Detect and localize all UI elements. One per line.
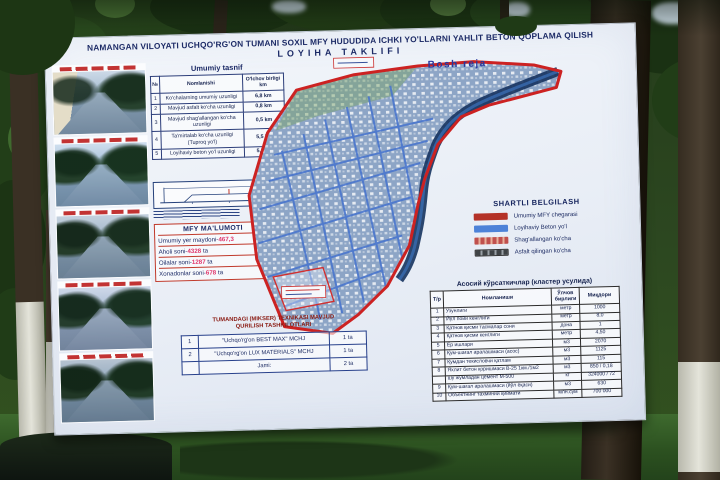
indicators-table: Асосий кўрсаткичлар (кластер усулида) Т/… [429, 277, 622, 402]
master-plan-label: Bosh reja [428, 58, 487, 71]
map-label-chip [281, 286, 325, 299]
legend-swatch-asphalt-road [475, 249, 509, 257]
photo-scene: NAMANGAN VILOYATI UCHQO'RG'ON TUMANI SOX… [0, 0, 720, 480]
street-photo-item [52, 63, 148, 135]
foliage-over-billboard [495, 16, 537, 36]
street-photo-strip [52, 63, 155, 425]
street-photo [53, 70, 147, 134]
legend-item: Umumiy MFY chegarasi [474, 210, 616, 221]
legend-item: Loyihaviy Beton yo'l [474, 222, 616, 233]
map-label-chip [334, 57, 374, 68]
grass-shadow [180, 440, 460, 480]
legend-swatch-boundary [474, 213, 508, 221]
street-photo-item [57, 279, 153, 351]
billboard: NAMANGAN VILOYATI UCHQO'RG'ON TUMANI SOX… [44, 22, 646, 435]
legend-item: Shag'allangan ko'cha [474, 234, 616, 245]
map-legend: SHARTLI BELGILASH Umumiy MFY chegarasi L… [457, 196, 617, 262]
legend-swatch-concrete-road [474, 225, 508, 233]
col-num: № [150, 76, 159, 93]
street-photo [60, 358, 154, 422]
street-photo [57, 214, 151, 278]
tree-trunk [678, 0, 720, 480]
street-photo-item [59, 351, 155, 423]
painted-trunk-base [678, 362, 720, 472]
legend-swatch-gravel-road [474, 237, 508, 245]
construction-orgs-table: TUMANDAGI (MIKSER) TEXNIKASI MAVJUD QURI… [180, 313, 367, 375]
legend-item: Asfalt qilingan ko'cha [475, 246, 617, 257]
street-photo [55, 142, 149, 206]
orgs-title: TUMANDAGI (MIKSER) TEXNIKASI MAVJUD QURI… [180, 313, 366, 332]
street-photo [58, 286, 152, 350]
water-edge [0, 432, 172, 480]
street-photo-item [55, 207, 151, 279]
street-photo-item [54, 135, 150, 207]
